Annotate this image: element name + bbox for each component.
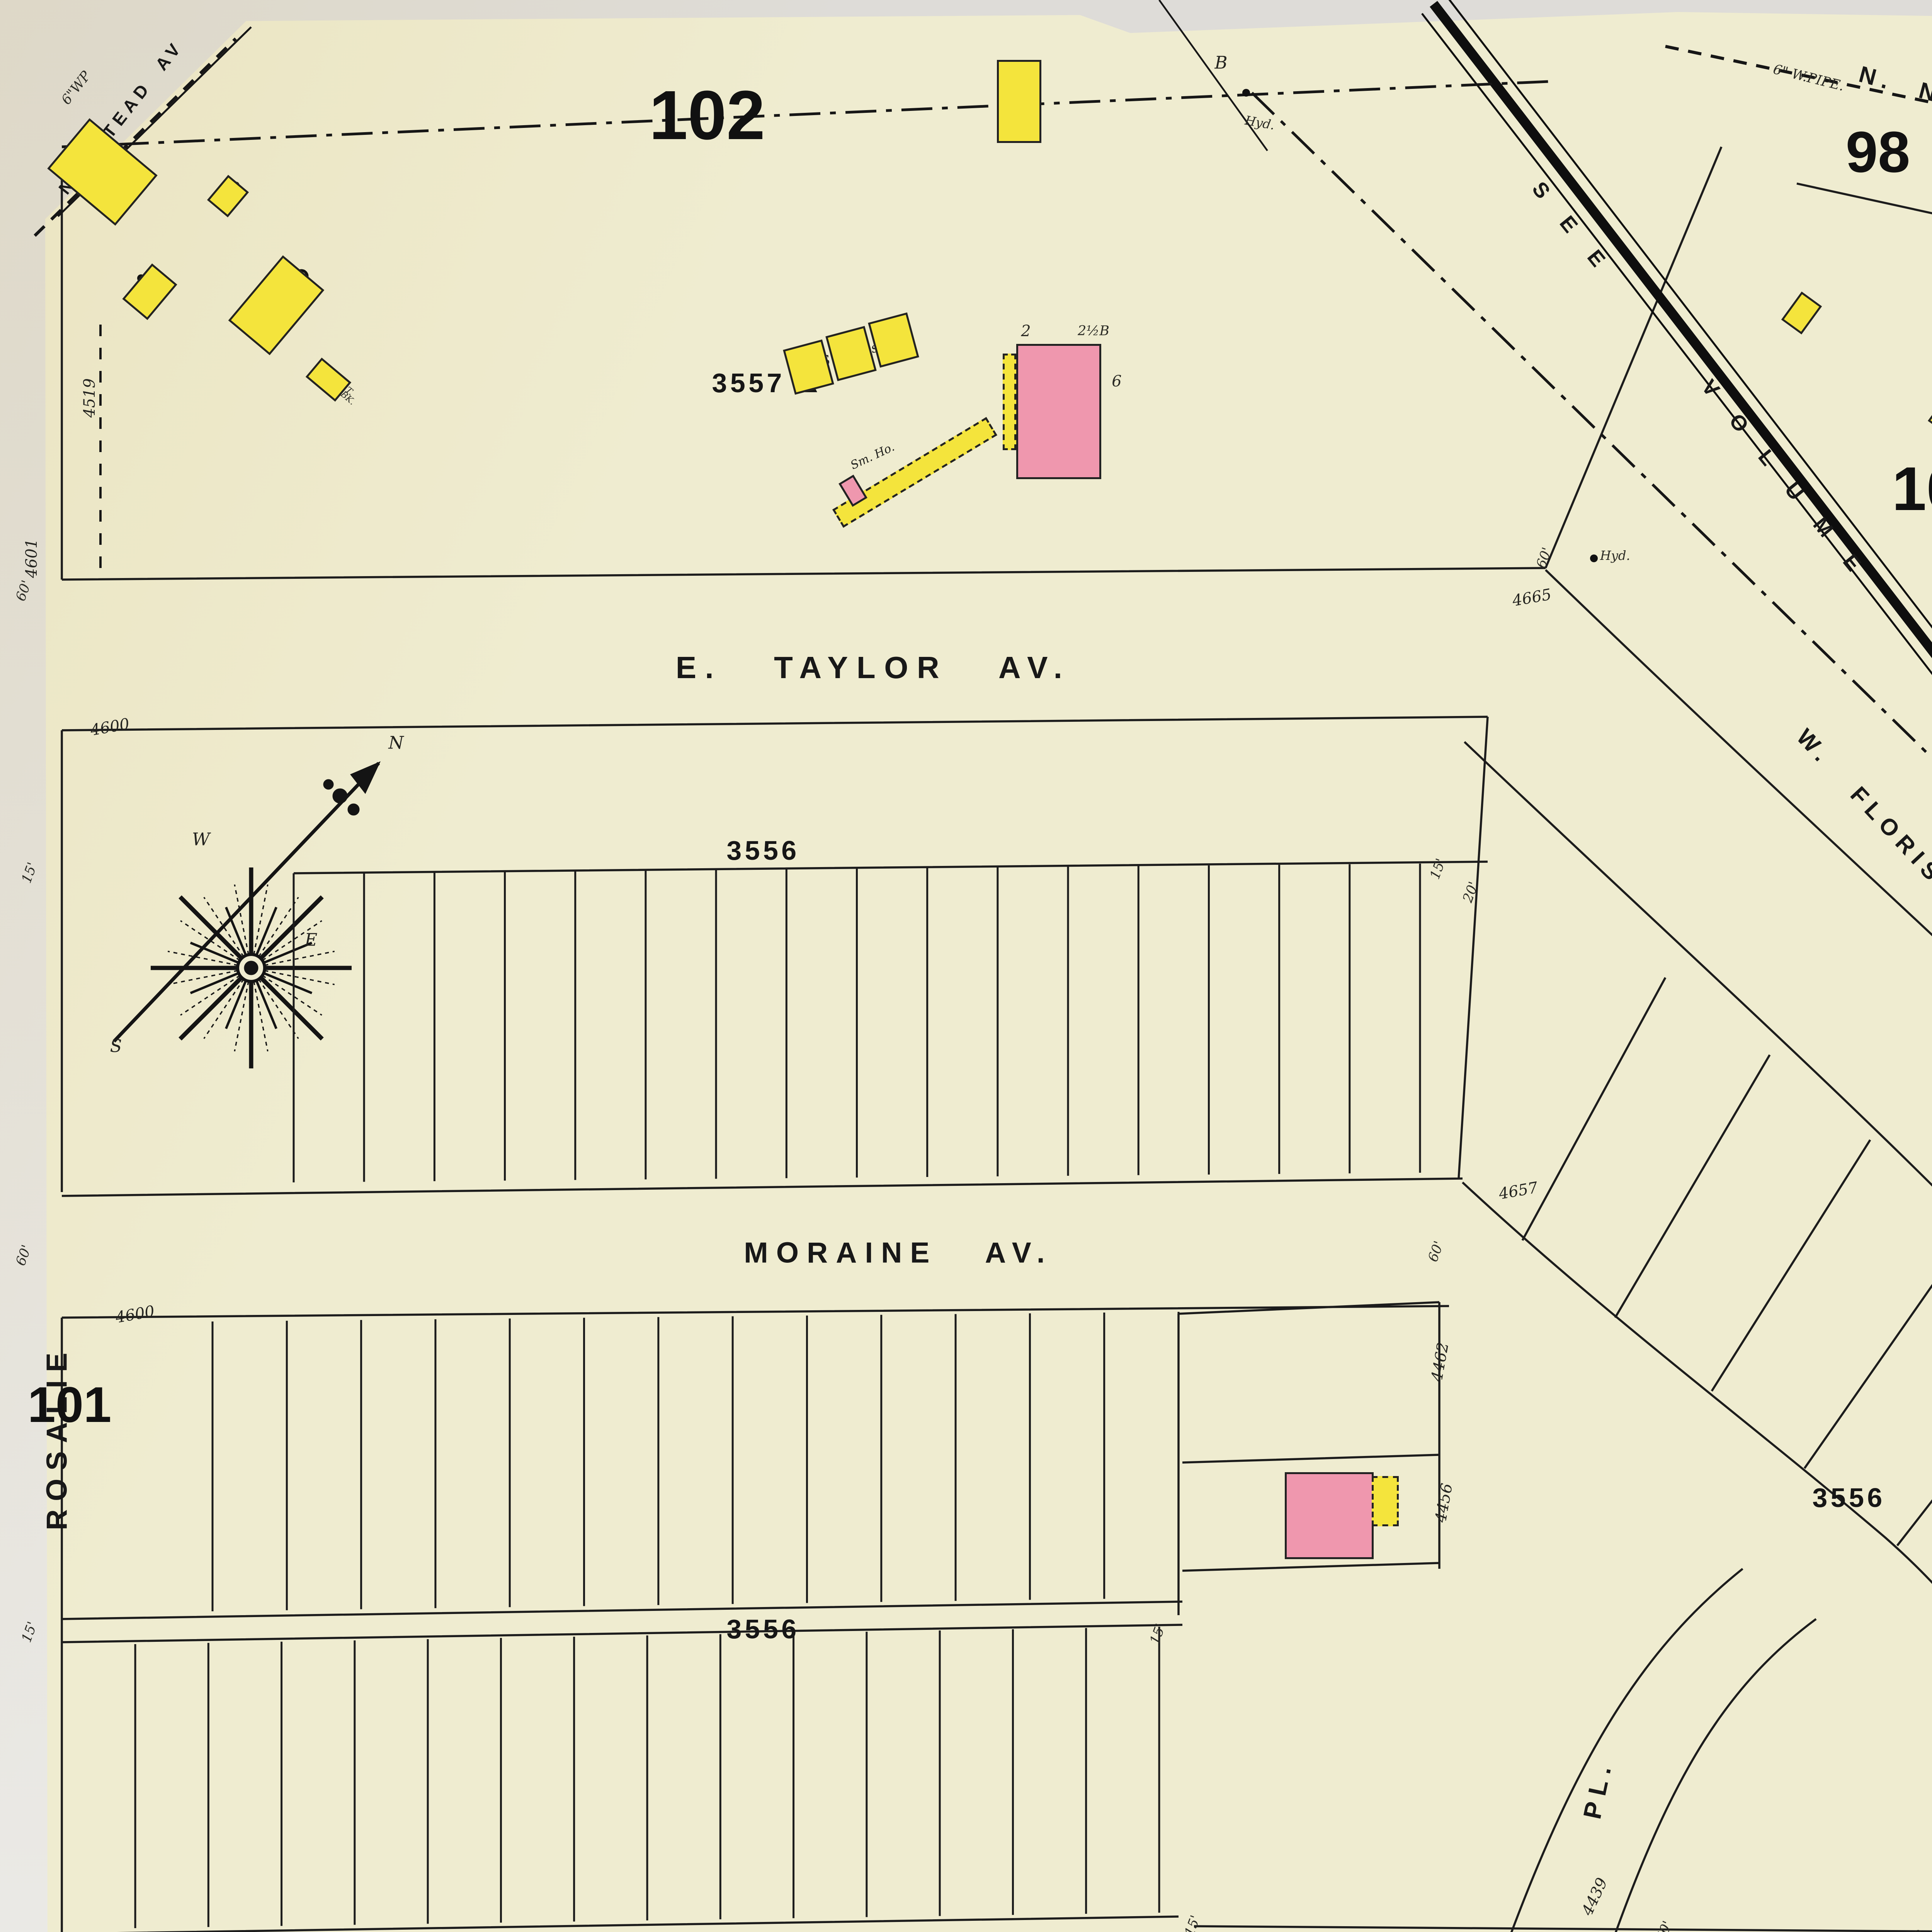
building: [1285, 1471, 1374, 1558]
building: [1002, 354, 1015, 450]
building: [1372, 1476, 1399, 1526]
building: [1016, 344, 1101, 479]
map-label: 3556: [726, 837, 799, 864]
map-label: 6: [1112, 375, 1121, 390]
map-label: 98: [1846, 126, 1910, 184]
map-label: 102: [649, 81, 765, 151]
map-label: 3556: [726, 1615, 799, 1642]
map-marker: [1590, 554, 1598, 562]
map-label: W: [192, 834, 210, 851]
building: [996, 59, 1041, 142]
map-label: 2½B: [1078, 326, 1109, 339]
map-label: MORAINE AV.: [744, 1240, 1053, 1269]
map-label: Hyd.: [1600, 550, 1630, 563]
compass-rose: [114, 763, 379, 1068]
map-label: E: [305, 934, 318, 952]
map-label: ROSALIE: [44, 1345, 73, 1530]
map-label: 101: [28, 1379, 112, 1430]
map-label: S: [110, 1041, 122, 1058]
map-label: E. TAYLOR AV.: [676, 655, 1071, 686]
map-label: 102: [1892, 458, 1932, 520]
sanborn-map-sheet: ©CLF 42387 102 ST. LOUIS, VOL. 7. NEW SH…: [0, 0, 1932, 1932]
generated-map-geometry: [68, 89, 1932, 1932]
map-label: B: [1214, 57, 1227, 75]
map-label: N: [388, 737, 403, 755]
map-label: 3556: [1812, 1484, 1885, 1511]
map-label: 4601: [25, 539, 41, 578]
map-label: 4519: [83, 378, 99, 418]
map-marker: [1242, 89, 1250, 97]
curved-street-lines: [1463, 0, 1932, 1932]
map-label: 2: [1021, 325, 1031, 340]
